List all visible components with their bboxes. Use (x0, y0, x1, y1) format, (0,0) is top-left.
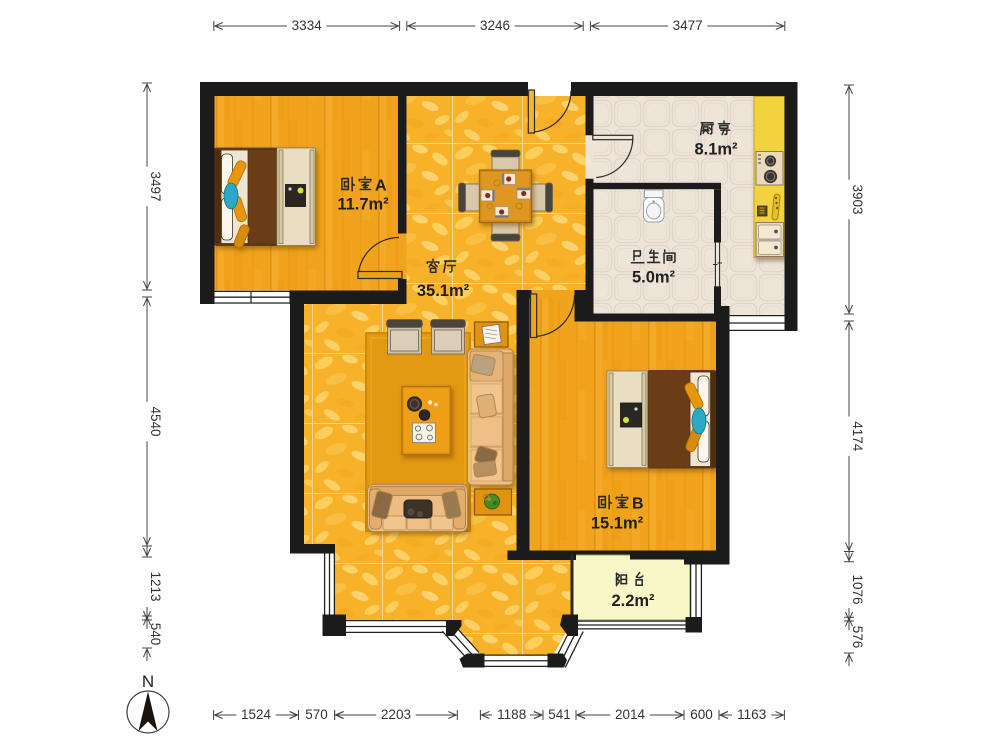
svg-text:B: B (632, 496, 644, 513)
svg-text:N: N (142, 672, 154, 691)
svg-text:540: 540 (148, 623, 163, 646)
svg-text:1188: 1188 (497, 707, 526, 722)
svg-text:3477: 3477 (673, 18, 703, 33)
svg-text:4174: 4174 (850, 421, 865, 452)
svg-text:11.7m²: 11.7m² (337, 196, 389, 214)
svg-text:35.1m²: 35.1m² (417, 282, 470, 300)
svg-text:2.2m²: 2.2m² (611, 592, 655, 610)
svg-text:2203: 2203 (381, 707, 411, 722)
svg-text:3246: 3246 (480, 18, 510, 33)
svg-text:1163: 1163 (737, 707, 766, 722)
svg-text:1076: 1076 (850, 574, 865, 604)
svg-text:570: 570 (305, 707, 328, 722)
svg-text:15.1m²: 15.1m² (591, 515, 644, 533)
svg-text:576: 576 (850, 626, 865, 649)
svg-text:3334: 3334 (292, 18, 323, 33)
svg-text:1524: 1524 (241, 707, 272, 722)
svg-text:2014: 2014 (615, 707, 646, 722)
svg-text:3497: 3497 (148, 171, 163, 201)
svg-text:5.0m²: 5.0m² (632, 269, 676, 287)
svg-text:A: A (375, 178, 387, 195)
svg-text:600: 600 (690, 707, 713, 722)
svg-text:8.1m²: 8.1m² (694, 141, 738, 159)
svg-text:3903: 3903 (850, 184, 865, 214)
svg-text:1213: 1213 (148, 571, 163, 601)
svg-text:4540: 4540 (148, 406, 163, 436)
svg-text:541: 541 (548, 707, 571, 722)
